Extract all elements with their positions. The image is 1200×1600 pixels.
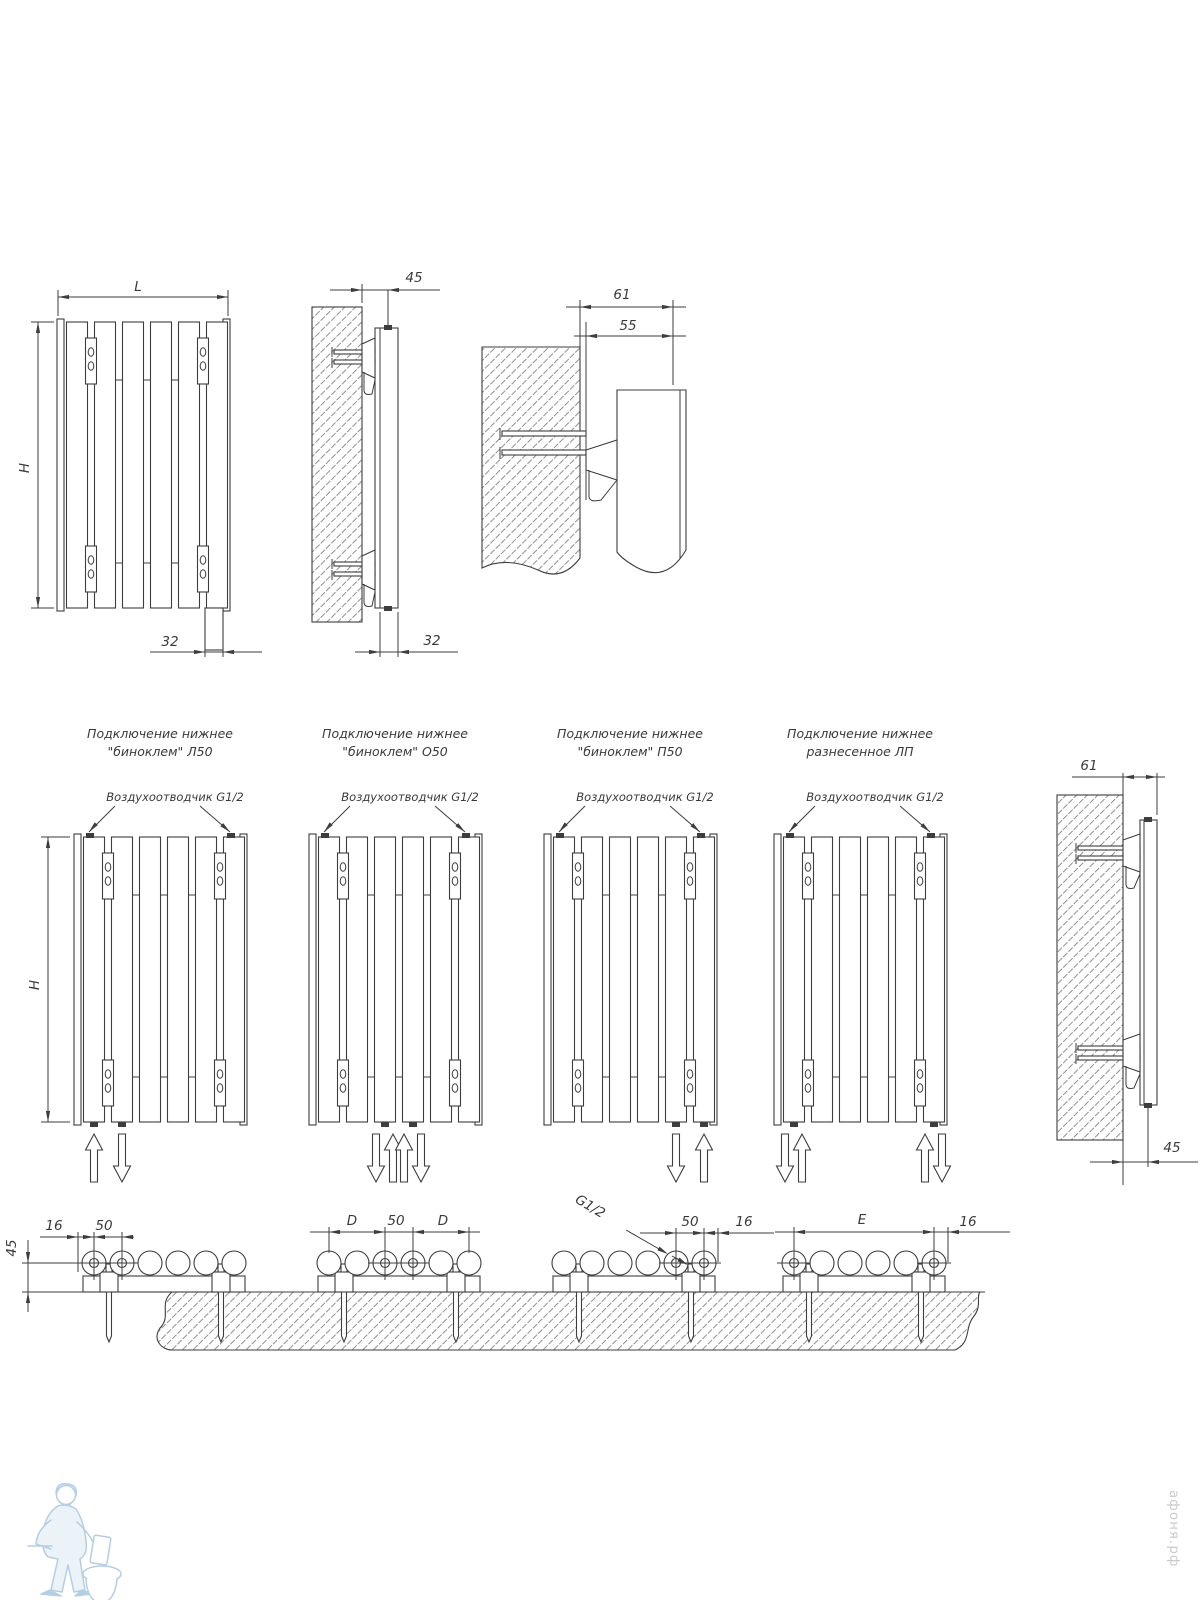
- flow-arrow-down: [777, 1134, 794, 1182]
- air-vent-mark: [1144, 817, 1152, 822]
- dimension-label: 16: [735, 1214, 752, 1230]
- connection-section: [74, 806, 247, 1182]
- dimension: 32: [355, 612, 458, 657]
- section-title: Подключение нижнее: [322, 726, 468, 741]
- dimension-label: 55: [619, 318, 636, 334]
- dimension-label: 16: [45, 1218, 62, 1234]
- connection-variants: [74, 806, 951, 1182]
- watermark-site: афоня.рф: [1166, 1490, 1182, 1567]
- connection-section: [309, 806, 482, 1182]
- radiator: [774, 833, 947, 1127]
- pipe-stub-mark: [1144, 1103, 1152, 1108]
- flow-arrow-up: [86, 1134, 103, 1182]
- dimension-label: 32: [423, 633, 440, 649]
- flow-arrow-up: [696, 1134, 713, 1182]
- dimension-label: 50: [387, 1213, 404, 1229]
- radiator: [309, 833, 482, 1127]
- dimension-label: 16: [959, 1214, 976, 1230]
- detail-view: [482, 322, 686, 574]
- pipe-stub-mark: [384, 606, 392, 611]
- section-subtitle: "биноклем" О50: [342, 744, 448, 759]
- flow-arrow-up: [917, 1134, 934, 1182]
- section-title: Подключение нижнее: [787, 726, 933, 741]
- wall-bracket: [586, 440, 617, 501]
- dimension-label: 45: [405, 270, 422, 286]
- technical-drawing: LH3245326155H6145165045D50D5016G1/2E16 П…: [0, 0, 1200, 1600]
- side-view-right: [1057, 775, 1157, 1185]
- air-vent-label: Воздухоотводчик G1/2: [341, 790, 478, 804]
- dimension: 50: [387, 1213, 404, 1229]
- dimension: 50: [83, 1218, 133, 1253]
- toilet-icon: [83, 1535, 121, 1600]
- bottom-plan-wall: [22, 1292, 985, 1350]
- flow-arrow-down: [114, 1134, 131, 1182]
- radiator: [57, 319, 230, 611]
- front-view-top: [57, 319, 230, 650]
- flow-arrow-down: [668, 1134, 685, 1182]
- dimension-label: 61: [1080, 758, 1097, 774]
- flow-arrow-down: [934, 1134, 951, 1182]
- section-subtitle: "биноклем" П50: [577, 744, 682, 759]
- flow-arrow-down: [413, 1134, 430, 1182]
- dimension: 16: [735, 1214, 752, 1230]
- section-subtitle: "биноклем" Л50: [107, 744, 212, 759]
- dimension-label: E: [858, 1212, 867, 1228]
- section-subtitle: разнесенное ЛП: [805, 744, 914, 759]
- section-title: Подключение нижнее: [87, 726, 233, 741]
- air-vent-label: Воздухоотводчик G1/2: [576, 790, 713, 804]
- dimension-label: G1/2: [572, 1191, 608, 1221]
- dimension: 55: [574, 318, 686, 338]
- flow-arrow-up: [385, 1134, 402, 1182]
- dimension-label: D: [438, 1213, 448, 1229]
- dimension-label: 50: [681, 1214, 698, 1230]
- connection-section: [544, 806, 717, 1182]
- dimension-label: H: [27, 980, 43, 990]
- dimension: H: [17, 322, 54, 608]
- dimension-label: 50: [95, 1218, 112, 1234]
- connection-section: [774, 806, 951, 1182]
- dimension-label: H: [17, 463, 33, 473]
- watermark-logo: [28, 1484, 121, 1600]
- dimension-label: 45: [1163, 1140, 1180, 1156]
- air-vent-label: Воздухоотводчик G1/2: [106, 790, 243, 804]
- dimension-label: L: [134, 279, 142, 295]
- dimension: 16: [948, 1214, 977, 1234]
- radiator: [544, 833, 717, 1127]
- dimension-label: 61: [613, 287, 630, 303]
- dimension-label: 45: [4, 1239, 20, 1256]
- flow-arrow-up: [794, 1134, 811, 1182]
- section-labels: Подключение нижнее "биноклем" Л50 Подклю…: [87, 726, 944, 804]
- radiator: [74, 833, 247, 1127]
- dimension: H: [27, 837, 70, 1122]
- flow-arrow-up: [396, 1134, 413, 1182]
- side-view-top: [312, 307, 398, 622]
- dimension: L: [58, 279, 228, 316]
- dimension: D: [438, 1213, 448, 1229]
- dimension-label: 32: [161, 634, 178, 650]
- section-title: Подключение нижнее: [557, 726, 703, 741]
- dimension: 45: [4, 1239, 82, 1312]
- air-vent-label: Воздухоотводчик G1/2: [806, 790, 943, 804]
- flow-arrow-down: [368, 1134, 385, 1182]
- dimension-label: D: [347, 1213, 357, 1229]
